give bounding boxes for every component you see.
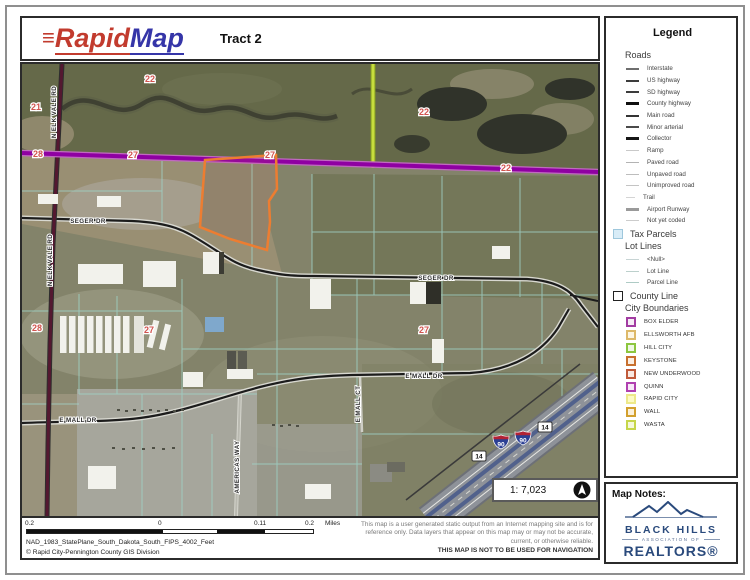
legend-city-item: HILL CITY xyxy=(613,341,732,354)
legend-city-item: QUINN xyxy=(613,380,732,393)
city-boundary-swatch xyxy=(626,407,636,417)
legend-tax-parcels: Tax Parcels xyxy=(613,229,732,239)
disclaimer-warning: THIS MAP IS NOT TO BE USED FOR NAVIGATIO… xyxy=(283,547,593,555)
road-line-swatch xyxy=(626,220,639,221)
legend-lot-item: <Null> xyxy=(613,254,732,266)
lot-line-swatch xyxy=(626,259,639,260)
city-boundary-swatch xyxy=(626,356,636,366)
logo-sub-row: ASSOCIATION OF xyxy=(612,537,730,542)
svg-text:E MALL DR: E MALL DR xyxy=(405,373,442,380)
road-line-swatch xyxy=(626,80,639,82)
legend-road-item: Paved road xyxy=(613,157,732,169)
city-boundary-swatch xyxy=(626,369,636,379)
legend-panel: Legend Roads Interstate US highway SD hi… xyxy=(604,16,738,478)
map-notes-title: Map Notes: xyxy=(612,489,730,500)
disclaimer-line: reference only. Data layers that appear … xyxy=(365,529,593,536)
map-footer-strip: 0.2 0 0.11 0.2 Miles NAD_1983_StatePlane… xyxy=(22,516,598,558)
legend-road-item: Collector xyxy=(613,133,732,145)
legend-road-item: County highway xyxy=(613,98,732,110)
svg-text:E MALL DR: E MALL DR xyxy=(59,417,96,424)
legend-title: Legend xyxy=(613,27,732,39)
legend-lot-item: Lot Line xyxy=(613,265,732,277)
road-line-swatch xyxy=(626,102,639,105)
rapidmap-logo: ≡RapidMap xyxy=(42,25,184,52)
map-notes-panel: Map Notes: BLACK HILLS ASSOCIATION OF RE… xyxy=(604,482,738,564)
svg-text:28: 28 xyxy=(32,323,42,333)
legend-city-item: WASTA xyxy=(613,419,732,432)
legend-road-item: Unimproved road xyxy=(613,180,732,192)
logo-rapid-text: Rapid xyxy=(55,23,130,55)
road-line-swatch xyxy=(626,197,635,198)
road-line-swatch xyxy=(626,208,639,211)
scalebar-label: 0.2 xyxy=(25,520,34,527)
svg-text:27: 27 xyxy=(419,325,429,335)
legend-road-item: Unpaved road xyxy=(613,168,732,180)
legend-city-item: NEW UNDERWOOD xyxy=(613,367,732,380)
scale-bar xyxy=(26,529,314,534)
legend-city-item: BOX ELDER xyxy=(613,316,732,329)
legend-lot-lines-header: Lot Lines xyxy=(625,241,732,251)
lot-line-swatch xyxy=(626,282,639,283)
logo-name-text: BLACK HILLS xyxy=(612,524,730,536)
svg-text:N ELK VALE RD: N ELK VALE RD xyxy=(47,234,54,286)
legend-city-boundaries-header: City Boundaries xyxy=(625,303,732,313)
lot-line-swatch xyxy=(626,271,639,272)
projection-text: NAD_1983_StatePlane_South_Dakota_South_F… xyxy=(26,539,214,546)
logo-map-text: Map xyxy=(130,23,184,55)
legend-city-item: KEYSTONE xyxy=(613,354,732,367)
svg-text:21: 21 xyxy=(31,102,41,112)
svg-text:SEGER DR: SEGER DR xyxy=(418,275,454,282)
svg-text:N ELK VALE RD: N ELK VALE RD xyxy=(51,86,58,138)
scale-ratio-text: 1: 7,023 xyxy=(510,485,573,496)
route-14-badge-icon: 14 xyxy=(538,422,552,432)
logo-sub-text: ASSOCIATION OF xyxy=(642,537,700,542)
map-panel: N ELK VALE RD N ELK VALE RD SEGER DR SEG… xyxy=(20,62,600,560)
road-line-swatch xyxy=(626,115,639,117)
city-boundary-swatch xyxy=(626,420,636,430)
city-boundary-swatch xyxy=(626,382,636,392)
road-line-swatch xyxy=(626,137,639,140)
scale-ratio-box: 1: 7,023 xyxy=(492,478,598,502)
road-line-swatch xyxy=(626,185,639,186)
city-boundary-swatch xyxy=(626,317,636,327)
black-hills-realtors-logo: BLACK HILLS ASSOCIATION OF REALTORS® xyxy=(612,501,730,559)
page-title: Tract 2 xyxy=(220,31,262,46)
svg-text:SEGER DR: SEGER DR xyxy=(70,218,106,225)
svg-text:14: 14 xyxy=(475,454,483,461)
legend-roads-header: Roads xyxy=(625,50,732,60)
header: ≡RapidMap Tract 2 xyxy=(20,16,600,61)
city-boundary-swatch xyxy=(626,343,636,353)
legend-road-item: Main road xyxy=(613,110,732,122)
aerial-map: N ELK VALE RD N ELK VALE RD SEGER DR SEG… xyxy=(22,64,598,516)
disclaimer-line: current, or otherwise reliable. xyxy=(511,538,593,545)
scalebar-label: 0.11 xyxy=(254,520,266,527)
legend-road-item: Minor arterial xyxy=(613,121,732,133)
road-line-swatch xyxy=(626,162,639,163)
route-14-badge-icon: 14 xyxy=(472,451,486,461)
legend-city-item: ELLSWORTH AFB xyxy=(613,329,732,342)
legend-road-item: US highway xyxy=(613,75,732,87)
svg-text:27: 27 xyxy=(128,150,138,160)
disclaimer-line: This map is a user generated static outp… xyxy=(361,521,593,528)
logo-equals-icon: ≡ xyxy=(42,25,55,50)
legend-city-item: WALL xyxy=(613,406,732,419)
legend-road-item: SD highway xyxy=(613,86,732,98)
svg-text:22: 22 xyxy=(501,163,511,173)
legend-road-item: Airport Runway xyxy=(613,203,732,215)
svg-text:27: 27 xyxy=(265,150,275,160)
copyright-text: © Rapid City-Pennington County GIS Divis… xyxy=(26,549,160,556)
legend-road-item: Interstate xyxy=(613,63,732,75)
city-boundary-swatch xyxy=(626,330,636,340)
legend-road-item: Ramp xyxy=(613,145,732,157)
road-line-swatch xyxy=(626,174,639,175)
map-canvas: N ELK VALE RD N ELK VALE RD SEGER DR SEG… xyxy=(22,64,598,516)
mountains-icon xyxy=(623,501,719,521)
legend-lot-item: Parcel Line xyxy=(613,277,732,289)
legend-road-item: Trail xyxy=(613,192,732,204)
logo-brand-text: REALTORS® xyxy=(612,543,730,559)
legend-county-line: County Line xyxy=(613,291,732,301)
svg-text:22: 22 xyxy=(419,107,429,117)
svg-text:22: 22 xyxy=(145,74,155,84)
road-line-swatch xyxy=(626,126,639,128)
tax-parcels-swatch xyxy=(613,229,623,239)
legend-road-item: Not yet coded xyxy=(613,215,732,227)
road-line-swatch xyxy=(626,68,639,70)
legend-city-item: RAPID CITY xyxy=(613,393,732,406)
svg-text:90: 90 xyxy=(497,442,505,449)
svg-text:14: 14 xyxy=(541,425,549,432)
scalebar-label: 0 xyxy=(158,520,162,527)
road-line-swatch xyxy=(626,150,639,151)
svg-text:AMERICAS WAY: AMERICAS WAY xyxy=(234,440,241,494)
disclaimer: This map is a user generated static outp… xyxy=(283,521,593,556)
svg-text:90: 90 xyxy=(519,438,527,445)
north-arrow-icon xyxy=(573,481,591,499)
city-boundary-swatch xyxy=(626,394,636,404)
svg-text:28: 28 xyxy=(33,149,43,159)
svg-text:E MALL CT: E MALL CT xyxy=(355,386,362,422)
road-line-swatch xyxy=(626,91,639,93)
county-line-swatch xyxy=(613,291,623,301)
svg-text:27: 27 xyxy=(144,325,154,335)
